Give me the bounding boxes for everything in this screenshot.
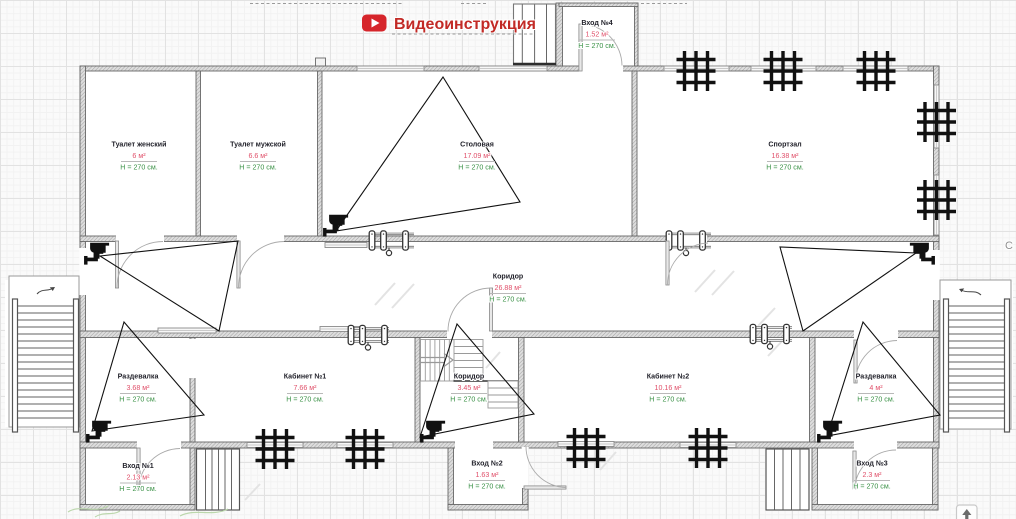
svg-text:6.6 м²: 6.6 м² xyxy=(248,152,268,160)
svg-text:H = 270 см.: H = 270 см. xyxy=(119,485,156,493)
svg-text:26.88 м²: 26.88 м² xyxy=(495,284,523,292)
svg-text:H = 270 см.: H = 270 см. xyxy=(458,164,495,172)
svg-text:Туалет мужской: Туалет мужской xyxy=(230,141,286,149)
svg-text:H = 270 см.: H = 270 см. xyxy=(468,483,505,491)
svg-text:H = 270 см.: H = 270 см. xyxy=(119,396,156,404)
svg-text:1.63 м²: 1.63 м² xyxy=(475,471,499,479)
svg-text:Коридор: Коридор xyxy=(493,273,524,281)
svg-text:H = 270 см.: H = 270 см. xyxy=(120,164,157,172)
svg-text:7.66 м²: 7.66 м² xyxy=(293,384,317,392)
svg-text:4 м²: 4 м² xyxy=(869,384,883,392)
svg-text:H = 270 см.: H = 270 см. xyxy=(489,296,526,304)
svg-text:H = 270 см.: H = 270 см. xyxy=(239,164,276,172)
svg-text:H = 270 см.: H = 270 см. xyxy=(853,483,890,491)
svg-text:Кабинет №1: Кабинет №1 xyxy=(284,373,327,381)
svg-text:1.52 м²: 1.52 м² xyxy=(585,31,609,39)
svg-text:Туалет женский: Туалет женский xyxy=(112,141,167,149)
svg-text:C: C xyxy=(1005,240,1013,252)
svg-text:H = 270 см.: H = 270 см. xyxy=(857,396,894,404)
svg-text:Кабинет №2: Кабинет №2 xyxy=(647,373,690,381)
svg-text:H = 270 см.: H = 270 см. xyxy=(286,396,323,404)
svg-text:6 м²: 6 м² xyxy=(132,152,146,160)
svg-text:Вход №1: Вход №1 xyxy=(122,462,153,470)
svg-text:H = 270 см.: H = 270 см. xyxy=(649,396,686,404)
svg-text:Вход №4: Вход №4 xyxy=(581,19,612,27)
svg-text:Спортзал: Спортзал xyxy=(768,141,802,149)
svg-text:Столовая: Столовая xyxy=(460,141,494,149)
svg-text:Вход №2: Вход №2 xyxy=(471,460,502,468)
svg-text:17.09 м²: 17.09 м² xyxy=(464,152,492,160)
svg-text:3.68 м²: 3.68 м² xyxy=(126,384,150,392)
svg-text:2.13 м²: 2.13 м² xyxy=(126,474,150,482)
svg-text:Вход №3: Вход №3 xyxy=(856,460,887,468)
svg-text:Коридор: Коридор xyxy=(454,373,485,381)
svg-text:H = 270 см.: H = 270 см. xyxy=(578,42,615,50)
svg-text:H = 270 см.: H = 270 см. xyxy=(450,396,487,404)
svg-text:10.16 м²: 10.16 м² xyxy=(655,384,683,392)
svg-text:Раздевалка: Раздевалка xyxy=(118,373,159,381)
svg-text:16.38 м²: 16.38 м² xyxy=(772,152,800,160)
svg-text:2.3 м²: 2.3 м² xyxy=(862,471,882,479)
svg-text:3.45 м²: 3.45 м² xyxy=(457,384,481,392)
svg-text:Раздевалка: Раздевалка xyxy=(856,373,897,381)
svg-text:Видеоинструкция: Видеоинструкция xyxy=(394,16,536,33)
svg-text:H = 270 см.: H = 270 см. xyxy=(766,164,803,172)
